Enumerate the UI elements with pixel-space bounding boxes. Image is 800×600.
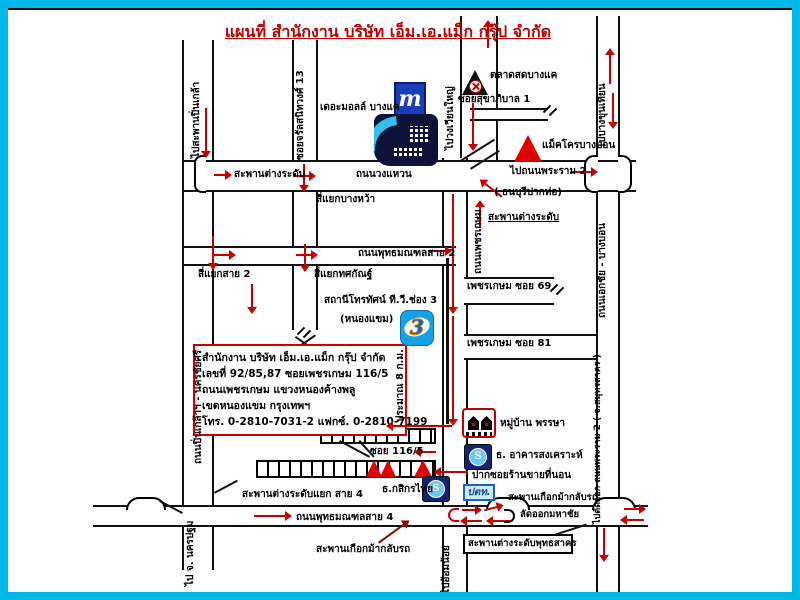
soi1165-route-line [388, 425, 452, 427]
office-line-3: ถนนเพชรเกษม แขวงหนองค้างพลู [202, 382, 398, 398]
road-break-symbol [551, 283, 565, 297]
cross-arrow [214, 254, 234, 256]
map-canvas: สำนักงาน บริษัท เอ็ม.เอ.แม็ก กรุ๊ป จำกัด… [0, 0, 800, 600]
office-line-5: โทร. 0-2810-7031-2 แฟกซ์. 0-2810-7199 [202, 414, 398, 430]
soi1165-label: ซอย 116/5 [370, 446, 424, 457]
kbank-label: ธ.กสิกรไทย [382, 484, 433, 495]
dir-bang-khun-thian: ไปบางขุนเทียน [598, 83, 608, 148]
route-arrow-down [205, 108, 207, 156]
ramp-line [214, 480, 238, 494]
office-line-2: เลขที่ 92/85,87 ซอยเพชรเกษม 116/5 [202, 366, 398, 382]
market-x-icon [469, 80, 482, 93]
house-icon [468, 416, 479, 430]
soi-mouth-triangle-marker [414, 460, 432, 477]
junction-bang-wa-label: สี่แยกบางหว้า [316, 194, 375, 205]
dir-wongwian-yai: ไปวงเวียนใหญ่ [446, 86, 456, 150]
house-icon [481, 416, 492, 430]
road-charan13-label: ซอยจรัลสนิทวงศ์ 13 [296, 70, 306, 160]
top-rule [8, 8, 792, 10]
channel3-logo-icon: 3 [400, 310, 434, 346]
dir-rama2-label: ไปถนนพระราม 2 [510, 166, 586, 177]
ghb-bank-label: ธ. อาคารสงเคราะห์ [496, 450, 583, 461]
road-phetkasem-label: ถนนเพชรเกษม [474, 209, 484, 274]
office-line-1: สำนักงาน บริษัท เอ็ม.เอ.แม็ก กรุ๊ป จำกัด [202, 350, 398, 366]
lane-arrow [622, 519, 644, 521]
sai4-arrow [254, 515, 290, 517]
horseshoe-left-label: สะพานเกือกม้ากลับรถ [316, 544, 410, 555]
makro-label: แม็คโครบางบอน [542, 140, 615, 151]
soi-sukhaphiban1-label: ซอยสุขาภิบาล 1 [458, 94, 530, 105]
route-guide-line [446, 258, 449, 424]
shophouse-row-lower [256, 460, 436, 478]
sai2-down-arrow [251, 284, 253, 312]
dir-nakhon-pathom: ไป จ. นครปฐม [186, 521, 196, 586]
nong-khaem-label: (หนองแขม) [340, 314, 393, 325]
map-title: แผนที่ สำนักงาน บริษัท เอ็ม.เอ.แม็ก กรุ๊… [183, 20, 593, 45]
house-checker [466, 432, 492, 436]
interchange-hump [126, 497, 166, 510]
road-wongwaen-label: ถนนวงแหวน [356, 169, 412, 180]
cross-arrow [296, 254, 316, 256]
road-pinklao-nakhonchaisi-label: ถนนปิ่นเกล้าฯ - นครชัยศรี [194, 350, 204, 464]
mattress-pointer [436, 471, 468, 473]
cross-arrow [304, 244, 306, 270]
phansa-village-label: หมู่บ้าน พรรษา [500, 418, 565, 429]
sai4-interchange-label: สะพานต่างระดับแยก สาย 4 [242, 489, 363, 500]
village-icon [462, 408, 496, 438]
makro-triangle-marker [514, 135, 542, 162]
interchange-left-label: สะพานต่างระดับ [234, 169, 305, 180]
phutthasakhon-interchange-box: สะพานต่างระดับพุทธสาคร [463, 534, 573, 554]
the-mall-building-icon [374, 114, 438, 166]
lane-arrow [624, 508, 644, 510]
soi81-label: เพชรเกษม ซอย 81 [467, 338, 551, 349]
road-soi-sukhaphiban1 [470, 108, 548, 121]
mattress-shop-label: ปากซอยร้านขายที่นอน [472, 470, 571, 481]
road-break-symbol [544, 104, 558, 118]
road-sai2-label: ถนนพุทธมณฑลสาย 2 [358, 248, 455, 259]
lane-arrow [462, 520, 482, 522]
dir-om-noi: ไปอ้อมน้อย [442, 545, 452, 594]
phetkasem-down-arrow [472, 103, 474, 149]
soi69-label: เพชรเกษม ซอย 69 [467, 281, 551, 292]
ptt-label: ปตท. [467, 487, 490, 498]
interchange-arrow [214, 174, 230, 176]
ekkachai-up-arrow [609, 50, 611, 84]
mall-logo-letter: m [398, 86, 421, 112]
road-sai4-label: ถนนพุทธมณฑลสาย 4 [296, 512, 393, 523]
market-label: ตลาดสดบางแค [490, 70, 557, 81]
road-ekkachai-label: ถนนเอกชัย - บางบอน [598, 223, 608, 318]
office-line-4: เขตหนองแขม กรุงเทพฯ [202, 398, 398, 414]
dir-pinklao: ไปสะพานปิ่นเกล้า [192, 82, 202, 158]
route-red-line [452, 316, 454, 424]
mall-windows [408, 126, 430, 144]
junction-sai2-label: สี่แยกสาย 2 [198, 269, 250, 280]
junction-totsakan-label: สี่แยกทศกัณฐ์ [314, 269, 372, 280]
the-mall-label: เดอะมอลล์ บางแค [320, 102, 400, 113]
interchange-right-label: สะพานต่างระดับ [488, 212, 559, 223]
horseshoe-right-label: สะพานเกือกม้ากลับรถ [508, 493, 598, 503]
ptt-station-badge: ปตท. [463, 484, 495, 501]
mall-windows [392, 146, 424, 158]
channel3-number: 3 [401, 315, 433, 339]
channel3-station-label: สถานีโทรทัศน์ ที.วี.ช่อง 3 [324, 295, 437, 306]
rama2-exit-arrow [603, 528, 605, 560]
ramp-arc [618, 155, 632, 193]
thonburi-pak-tho-label: ( ธนบุรีปากท่อ) [494, 187, 562, 198]
phutthasakhon-label: สะพานต่างระดับพุทธสาคร [468, 538, 576, 549]
office-info-box: สำนักงาน บริษัท เอ็ม.เอ.แม็ก กรุ๊ป จำกัด… [193, 344, 407, 436]
office-triangle-marker [380, 460, 396, 477]
bank-symbol: S [469, 448, 487, 466]
ekkachai-down-arrow [612, 93, 614, 127]
mahachai-label: ลัดออกมหาชัย [520, 510, 579, 520]
ghb-bank-logo-icon: S [464, 444, 492, 470]
lane-arrow [462, 509, 480, 511]
cross-arrow [212, 236, 214, 268]
distance-8km-label: ประมาณ 8 ก.ม. [396, 349, 406, 422]
